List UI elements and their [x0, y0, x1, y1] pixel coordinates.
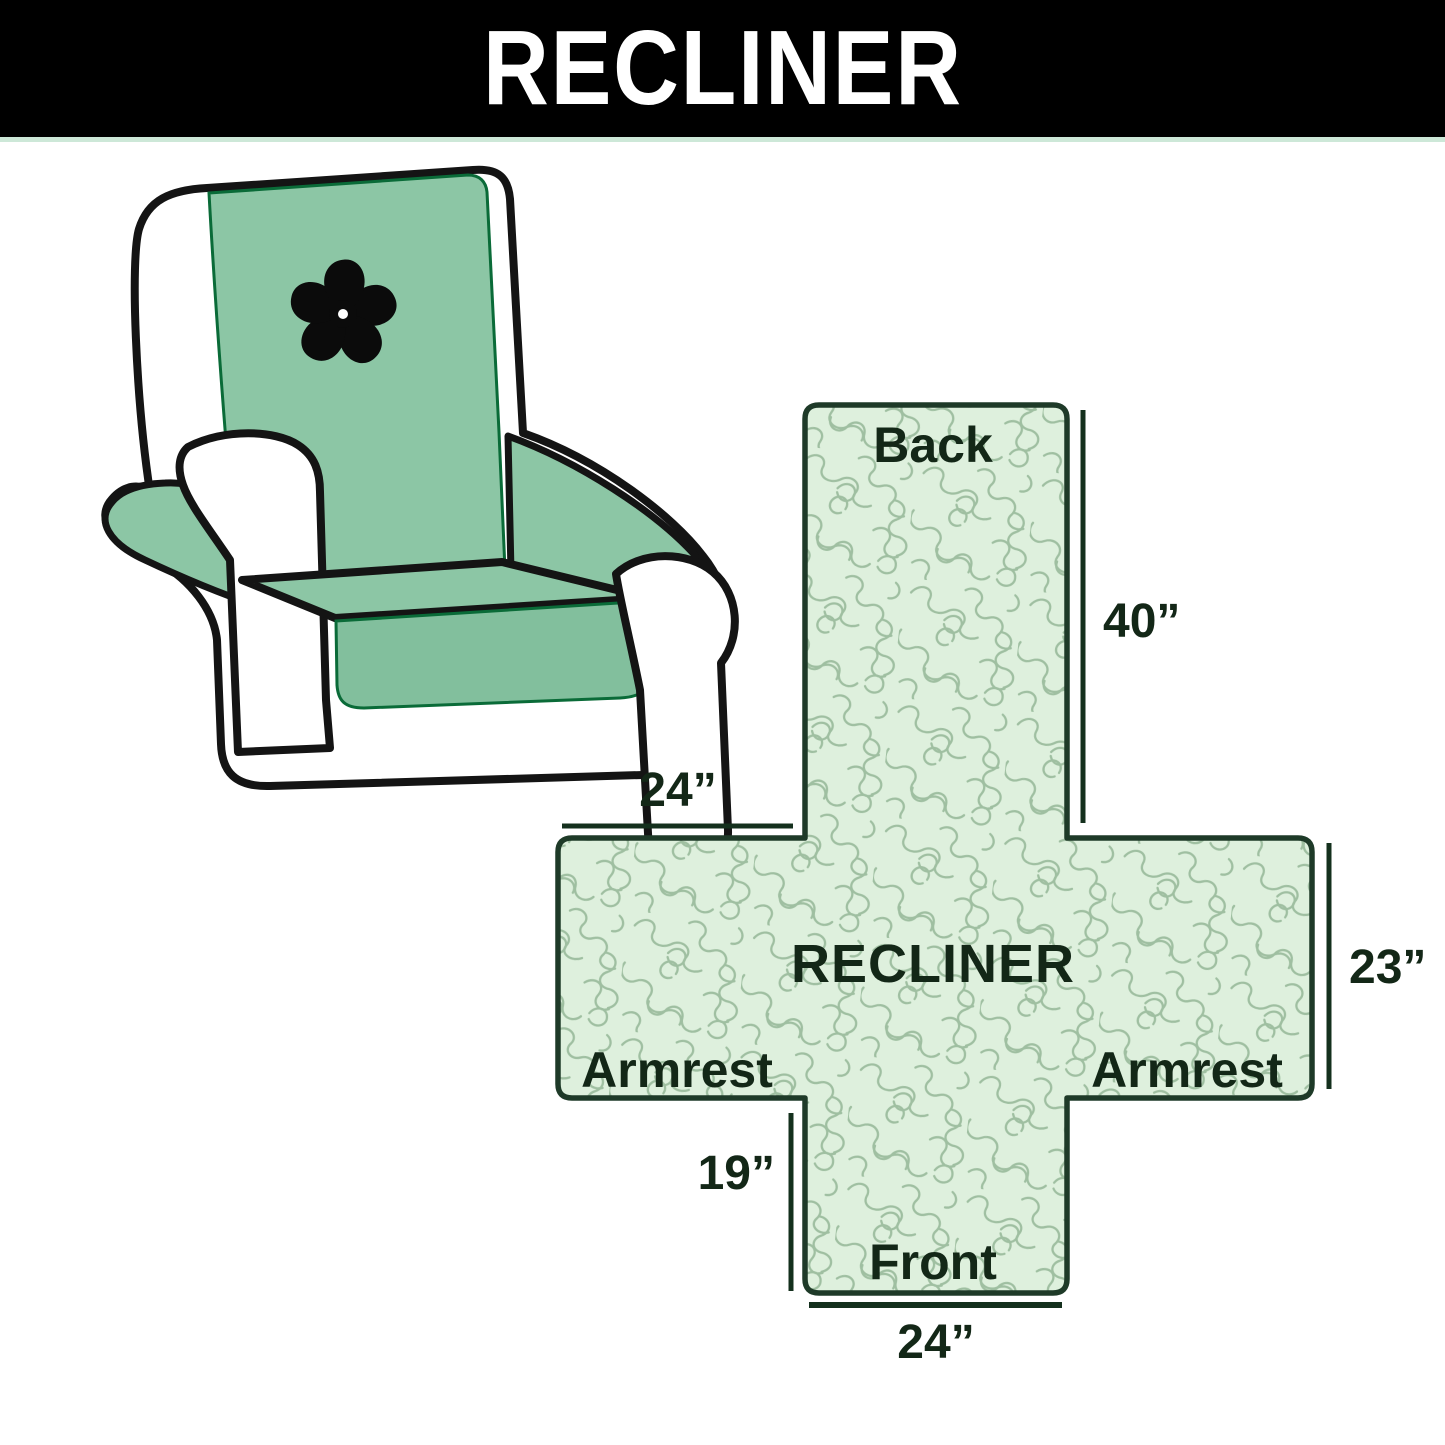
- poster-scene: Back RECLINER Armrest Armrest Front 40” …: [0, 0, 1445, 1445]
- back-height-dim: 40”: [1103, 595, 1180, 648]
- armrest-right-label: Armrest: [1091, 1042, 1283, 1098]
- armrest-side-height-dim: 23”: [1349, 941, 1426, 994]
- front-flap-height-dim: 19”: [698, 1147, 775, 1200]
- back-label: Back: [873, 417, 993, 473]
- center-product-label: RECLINER: [791, 934, 1075, 994]
- armrest-left-label: Armrest: [581, 1042, 773, 1098]
- front-label: Front: [869, 1234, 997, 1290]
- front-width-dim: 24”: [897, 1316, 974, 1369]
- armrest-top-width-dim: 24”: [639, 764, 716, 817]
- cover-seat-apron: [336, 601, 653, 708]
